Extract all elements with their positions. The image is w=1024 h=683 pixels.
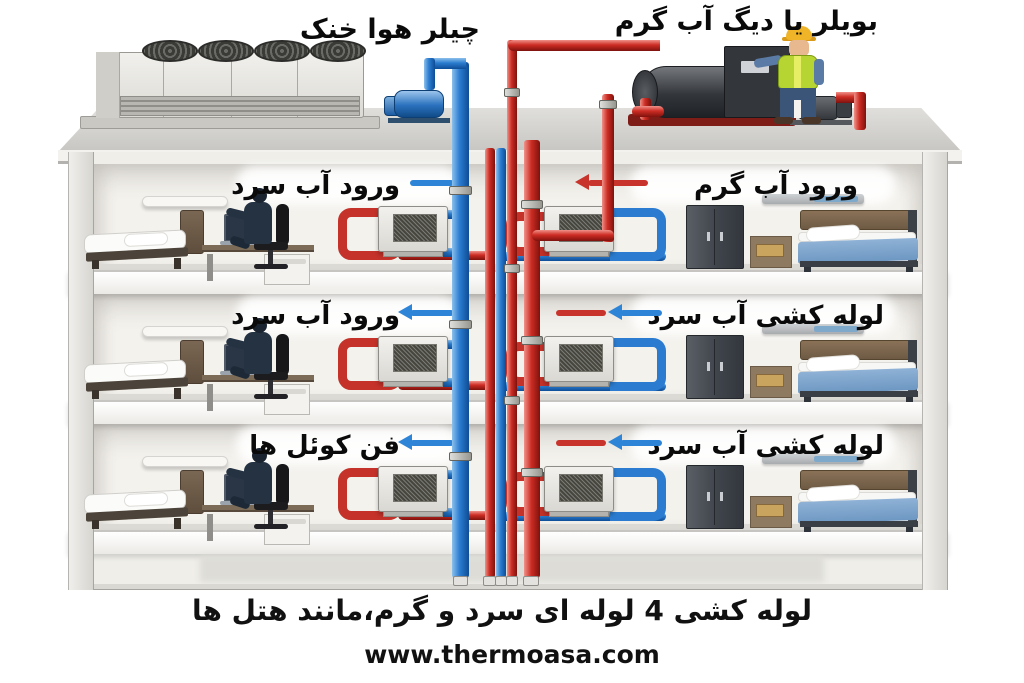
bed-leg — [92, 390, 99, 399]
bed-frame — [800, 521, 918, 527]
worker-face — [789, 40, 809, 56]
bed-pillow — [124, 492, 168, 507]
worker-leg-gap — [794, 100, 801, 118]
nightstand-drawer — [756, 374, 784, 387]
boiler-pipe-stub — [632, 106, 664, 117]
cold-arrow-icon — [608, 304, 622, 320]
bed-leg — [92, 520, 99, 529]
floor-right-label: لوله کشی آب سرد — [668, 428, 884, 464]
wardrobe — [686, 465, 744, 529]
fan-coil-tray — [549, 511, 609, 517]
bed-leg — [906, 267, 913, 272]
chiller-vent-slats — [120, 96, 360, 116]
bed-leg — [174, 388, 181, 399]
boiler-drop-connector — [532, 230, 614, 241]
wardrobe-door-seam — [714, 339, 715, 395]
pipe-coupling — [449, 186, 472, 195]
pipe-end-cap — [453, 576, 468, 586]
worker-arm — [814, 59, 824, 85]
desk-leg — [207, 384, 213, 411]
pipe-coupling — [521, 200, 543, 209]
fan-coil-grille — [559, 344, 603, 372]
wardrobe-handle — [720, 492, 723, 501]
cold-arrow-shaft — [620, 310, 662, 316]
pipe-coupling — [449, 452, 472, 461]
person-torso — [244, 332, 272, 374]
desk-leg — [207, 514, 213, 541]
pump-base — [388, 118, 450, 123]
hot-dash — [556, 440, 606, 446]
wardrobe-door-seam — [714, 469, 715, 525]
bed-leg — [174, 258, 181, 269]
floor-left-label: ورود آب سرد — [180, 298, 400, 334]
fan-coil-grille — [393, 214, 437, 242]
wardrobe-handle — [707, 362, 710, 371]
cold-arrow-shaft — [410, 310, 454, 316]
bed-right — [748, 204, 926, 272]
floor-left-label: ورود آب سرد — [180, 168, 400, 204]
pipe-coupling — [504, 264, 520, 273]
hot-dash — [556, 310, 606, 316]
chair-back — [276, 204, 289, 246]
pump-body — [394, 90, 444, 118]
floor-right-label: ورود آب گرم — [668, 168, 884, 204]
boiler-drop-pipe — [602, 94, 614, 242]
bed-right — [748, 464, 926, 532]
hot-arrow-shaft — [588, 180, 648, 186]
fan-coil-unit-left — [378, 336, 448, 382]
chair-base — [254, 394, 288, 399]
hot-supply-riser — [507, 40, 517, 578]
bed-left — [84, 210, 206, 270]
fan-coil-tray — [549, 251, 609, 257]
wardrobe-handle — [720, 232, 723, 241]
chiller-fan-icon — [198, 40, 254, 62]
wardrobe-handle — [707, 492, 710, 501]
chiller-side-panel — [96, 52, 120, 118]
fan-coil-tray — [549, 381, 609, 387]
hot-pipe-drop — [854, 92, 866, 130]
cold-return-riser — [496, 148, 506, 578]
hvac-4pipe-infographic: ورود آب سرد ورود آب گرم — [0, 0, 1024, 683]
bed-frame — [800, 391, 918, 397]
cold-loop-right — [610, 338, 666, 391]
chilled-water-pump — [394, 86, 450, 124]
pipe-coupling — [521, 336, 543, 345]
cold-pipe-drop — [424, 58, 435, 90]
pipe-end-cap — [506, 576, 518, 586]
nightstand-drawer — [756, 504, 784, 517]
wardrobe-handle — [720, 362, 723, 371]
bed-leg — [906, 527, 913, 532]
bed-leg — [92, 260, 99, 269]
fan-coil-tray — [383, 251, 443, 257]
pipe-coupling — [449, 320, 472, 329]
cold-arrow-shaft — [410, 440, 454, 446]
chair-post — [268, 380, 273, 394]
vest-stripe — [794, 56, 801, 88]
wardrobe-handle — [707, 232, 710, 241]
fan-coil-unit-right — [544, 336, 614, 382]
fan-coil-grille — [393, 474, 437, 502]
bed-left — [84, 340, 206, 400]
chair-back — [276, 334, 289, 376]
bed-leg — [804, 527, 811, 532]
floor-right-label: لوله کشی آب سرد — [668, 298, 884, 334]
hot-arrow-icon — [575, 174, 589, 190]
pipe-coupling — [504, 88, 520, 97]
bed-leg — [174, 518, 181, 529]
worker-shoe — [802, 117, 821, 124]
boiler-title: بویلر یا دیگ آب گرم — [618, 6, 878, 37]
bed-right — [748, 334, 926, 402]
hot-supply-header — [508, 40, 660, 51]
wardrobe-door-seam — [714, 209, 715, 265]
chiller-fan-icon — [142, 40, 198, 62]
chair-post — [268, 250, 273, 264]
fan-coil-unit-left — [378, 466, 448, 512]
cold-arrow-icon — [608, 434, 622, 450]
person-torso — [244, 462, 272, 504]
bed-leg — [804, 267, 811, 272]
fan-coil-tray — [383, 511, 443, 517]
worker-figure — [768, 26, 832, 126]
chair-base — [254, 524, 288, 529]
chiller-title: چیلر هوا خنک — [330, 14, 480, 45]
cold-arrow-shaft — [410, 180, 454, 186]
fan-coil-grille — [559, 474, 603, 502]
desk-leg — [207, 254, 213, 281]
bed-pillow — [124, 362, 168, 377]
wardrobe — [686, 335, 744, 399]
pipe-coupling — [521, 468, 543, 477]
caption-text: لوله کشی 4 لوله ای سرد و گرم،مانند هتل ه… — [212, 594, 812, 627]
cold-arrow-shaft — [620, 440, 662, 446]
chair-back — [276, 464, 289, 506]
cold-loop-right — [610, 208, 666, 261]
pipe-coupling — [504, 396, 520, 405]
cold-arrow-icon — [398, 434, 412, 450]
fan-coil-grille — [393, 344, 437, 372]
hot-return-riser — [485, 148, 495, 578]
fan-coil-tray — [383, 381, 443, 387]
wardrobe — [686, 205, 744, 269]
pipe-end-cap — [523, 576, 539, 586]
nightstand-drawer — [756, 244, 784, 257]
fan-coil-unit-right — [544, 466, 614, 512]
person-torso — [244, 202, 272, 244]
chair-base — [254, 264, 288, 269]
bed-leg — [804, 397, 811, 402]
bed-pillow — [124, 232, 168, 247]
pipe-coupling — [599, 100, 617, 109]
chair-post — [268, 510, 273, 524]
cold-loop-right — [610, 468, 666, 521]
floor-left-label: فن کوئل ها — [180, 428, 400, 464]
cold-arrow-icon — [398, 304, 412, 320]
worker-shoe — [774, 117, 793, 124]
fan-coil-unit-left — [378, 206, 448, 252]
website-url: www.thermoasa.com — [312, 640, 712, 669]
bed-left — [84, 470, 206, 530]
bed-frame — [800, 261, 918, 267]
bed-leg — [906, 397, 913, 402]
